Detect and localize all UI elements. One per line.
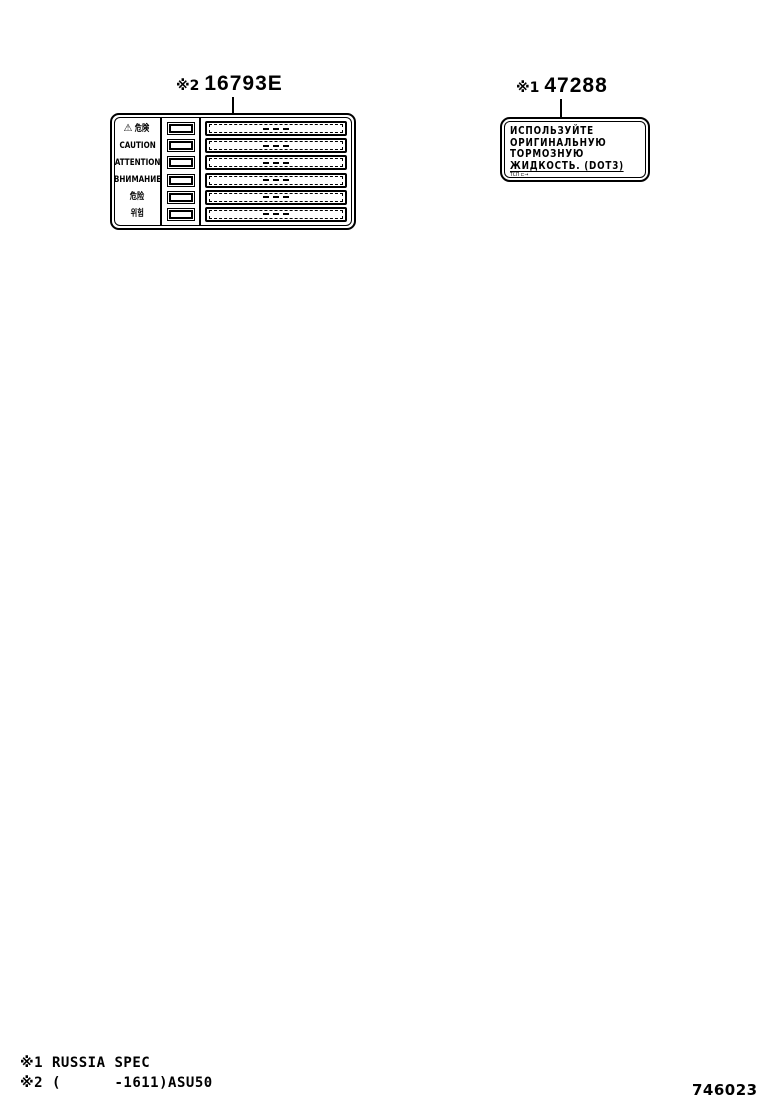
caution-pictogram-column — [162, 118, 201, 225]
pictogram-box-inner — [169, 158, 193, 167]
brake-fluid-label: ИСПОЛЬЗУЙТЕ ОРИГИНАЛЬНУЮ ТОРМОЗНУЮ ЖИДКО… — [500, 117, 650, 182]
caution-text-box — [205, 121, 347, 136]
caution-text-box — [205, 173, 347, 188]
leader-line — [560, 99, 562, 117]
pictogram-box-inner — [169, 141, 193, 150]
caution-row-zh: 危险 — [128, 193, 146, 202]
sheet-number: 746023 — [692, 1081, 758, 1099]
part-code: 47288 — [544, 74, 607, 98]
callout-ref-mark: ※2 — [176, 78, 199, 94]
caution-text-box — [205, 190, 347, 205]
parts-catalog-page: ※2 16793E ⚠ 危険 CAUTION ATTENTION ВНИМАНИ… — [0, 0, 760, 1112]
caution-word: 危険 — [135, 125, 149, 134]
pictogram-box — [167, 174, 195, 187]
caution-text-placeholder — [209, 176, 343, 185]
part-code: 16793E — [204, 72, 282, 96]
tiny-stamp-mark: ТСП ⊏→ — [510, 172, 528, 178]
pictogram-box — [167, 208, 195, 221]
callout-brake-fluid-label: ※1 47288 — [516, 74, 608, 98]
caution-text-placeholder — [209, 193, 343, 202]
caution-text-placeholder — [209, 210, 343, 219]
callout-caution-label: ※2 16793E — [176, 72, 283, 96]
caution-row-en: CAUTION — [115, 142, 160, 151]
pictogram-box — [167, 156, 195, 169]
caution-text-box — [205, 155, 347, 170]
caution-text-placeholder — [209, 124, 343, 133]
callout-ref-mark: ※1 — [516, 80, 539, 96]
caution-word: ВНИМАНИЕ — [114, 176, 161, 185]
caution-label-inner-border: ⚠ 危険 CAUTION ATTENTION ВНИМАНИЕ 危险 위험 — [114, 117, 352, 226]
caution-word: ATTENTION — [115, 159, 161, 168]
pictogram-box — [167, 139, 195, 152]
brake-fluid-label-inner-border: ИСПОЛЬЗУЙТЕ ОРИГИНАЛЬНУЮ ТОРМОЗНУЮ ЖИДКО… — [504, 121, 646, 178]
brake-fluid-text-line: ЖИДКОСТЬ. (DOT3) — [510, 160, 624, 173]
caution-text-box — [205, 138, 347, 153]
pictogram-box-inner — [169, 210, 193, 219]
caution-word: 위험 — [131, 210, 144, 219]
pictogram-box — [167, 122, 195, 135]
pictogram-box — [167, 191, 195, 204]
caution-text-placeholder — [209, 158, 343, 167]
caution-label: ⚠ 危険 CAUTION ATTENTION ВНИМАНИЕ 危险 위험 — [110, 113, 356, 230]
caution-row-ko: 위험 — [129, 210, 146, 219]
caution-text-column — [201, 118, 351, 225]
caution-word: CAUTION — [119, 142, 155, 151]
caution-text-box — [205, 207, 347, 222]
leader-line — [232, 97, 234, 113]
pictogram-box-inner — [169, 176, 193, 185]
pictogram-box-inner — [169, 193, 193, 202]
pictogram-box-inner — [169, 124, 193, 133]
caution-language-column: ⚠ 危険 CAUTION ATTENTION ВНИМАНИЕ 危险 위험 — [115, 118, 162, 225]
warning-triangle-icon: ⚠ — [124, 124, 133, 134]
caution-word: 危险 — [130, 193, 144, 202]
caution-row-ja: ⚠ 危険 — [124, 124, 152, 134]
caution-text-placeholder — [209, 141, 343, 150]
caution-row-fr: ATTENTION — [114, 159, 166, 168]
footnote-model-range: ※2 ( -1611)ASU50 — [20, 1076, 213, 1090]
caution-row-ru: ВНИМАНИЕ — [114, 176, 167, 185]
footnote-russia-spec: ※1 RUSSIA SPEC — [20, 1056, 150, 1070]
